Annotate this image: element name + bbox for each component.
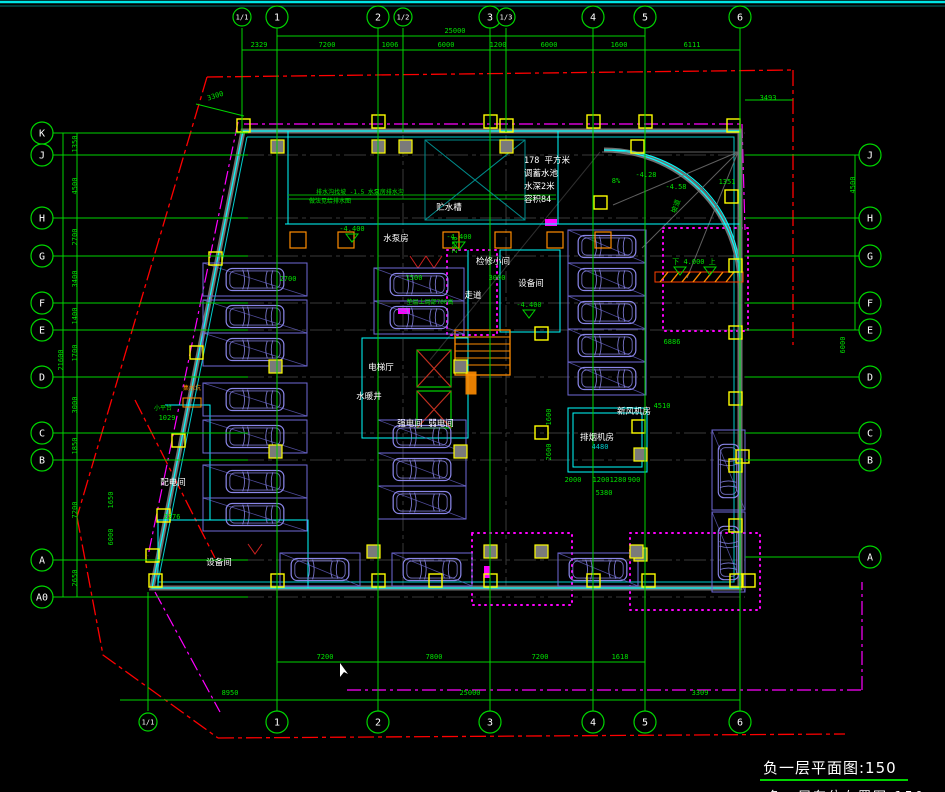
grid-bubble-label: 2 [375,13,381,24]
dim-text: 1006 [382,41,399,49]
dim-text: 1850 [71,438,79,455]
level-mark-triangle [674,267,686,275]
grid-bubble-label: E [867,326,873,337]
grid-bubble-label: E [39,326,45,337]
title-underline [760,779,908,781]
column-gray-filled [269,360,282,373]
room-label: 弱电间 [428,418,454,429]
grid-bubble-label: 3 [487,13,493,24]
dim-text: 8950 [222,689,239,697]
annotations: -4.400-4.400-4.400下 4.000 上-4.28-4.588%坡… [154,171,716,412]
column-orange [290,232,306,248]
dim-text: 2329 [251,41,268,49]
grid-bubble-label: A [39,556,45,567]
red-boundary-lines [77,70,845,738]
room-label: 水泵房 [383,233,409,244]
grid-bubble-label: H [39,214,45,225]
dim-text: 1650 [107,492,115,509]
parking-stall [378,486,466,519]
dim-text: 2600 [545,444,553,461]
annotation-text: 下 4.000 上 [672,257,716,266]
parking-stall [203,465,307,498]
parking-stall [392,553,472,586]
annotation-text: 垫层上局部700高 [407,298,454,306]
annotation-text: -4.28 [635,171,656,179]
column-gray-filled [269,445,282,458]
grid-bubble-label: 3 [487,718,493,729]
pool-note-line: 178 平方米 [524,155,570,166]
annotation-text: 排水沟找坡 -1.5 水泵房排水沟 [316,188,404,196]
grid-bubble-label: 2 [375,718,381,729]
grid-bubble-label: F [867,299,873,310]
grid-bubble-label: C [867,429,873,440]
cad-viewport: 1/1121/231/34561/1123456KJHGFEDCBAA0JHGF… [0,0,945,792]
room-label: 水暖井 [356,391,382,402]
annotation-text: 8% [612,177,621,185]
parking-stall [374,268,464,301]
dim-text: 1200 [593,476,610,484]
grid-bubble-label: C [39,429,45,440]
dim-text: 2000 [565,476,582,484]
grid-bubble-label: D [39,373,45,384]
room-label: 配电间 [160,477,186,488]
column-yellow [742,574,755,587]
dim-text: 1600 [545,409,553,426]
grid-bubble-label: K [39,129,45,140]
column-orange [595,232,611,248]
grid-bubble-label: 1/2 [397,14,410,22]
grid-bubble-label: 1/1 [236,14,249,22]
parking-stall [558,553,638,586]
dim-text: 1350 [71,136,79,153]
dim-text: 3000 [489,274,506,282]
column-yellow [535,327,548,340]
parking-stall [203,333,307,366]
magenta-lines [148,122,862,712]
column-yellow [725,190,738,203]
parking-stall [568,263,646,296]
dim-text: 900 [628,476,641,484]
dim-text: 2650 [71,570,79,587]
grid-bubble-label: G [867,252,873,263]
parking-stall [203,300,307,333]
grid-bubble-label: D [867,373,873,384]
grid-bubble-label: 1/3 [500,14,513,22]
top-border [0,2,945,6]
grid-bubble-label: 1 [274,13,280,24]
grid-bubble-label: A [867,553,873,564]
annotation-text: -4.400 [446,233,471,241]
dim-text: 4510 [654,402,671,410]
dim-text: 21600 [57,349,65,370]
dim-text: 1400 [71,308,79,325]
dim-text: 1029 [159,414,176,422]
dim-text: 7800 [426,653,443,661]
grid-bubble-label: A0 [36,593,48,604]
parking-stall [203,498,307,531]
grid-bubble-label: 1 [274,718,280,729]
column-yellow [642,574,655,587]
room-label: 电梯厅 [368,362,394,373]
dim-text: 7200 [319,41,336,49]
dim-text: 4480 [592,443,609,451]
column-orange [547,232,563,248]
column-orange [495,232,511,248]
grid-bubble-label: 6 [737,13,743,24]
dim-text: 1500 [406,274,423,282]
dim-text: 3400 [71,271,79,288]
room-label: 强电间 [397,418,423,429]
parking-stall [568,230,646,263]
room-label: 排烟机房 [580,432,614,443]
parking-stall [280,553,360,586]
grid-bubble-label: B [867,456,873,467]
dim-text: 4500 [71,178,79,195]
annotation-text: -4.400 [516,301,541,309]
column-gray-filled [454,360,467,373]
dim-text: 2700 [280,275,297,283]
room-label: 走道 [464,290,482,301]
dim-text: 2276 [164,513,181,521]
column-gray-filled [535,545,548,558]
dim-text: 6111 [684,41,701,49]
dim-text: 1200 [490,41,507,49]
annotation-text: 小平台 [154,404,172,412]
annotation-text: 集水坑 [183,384,201,392]
grid-bubble-label: J [39,151,45,162]
parking-stall [203,420,307,453]
parking-stall [568,296,646,329]
elevator-shafts [417,350,451,428]
column-gray-filled [399,140,412,153]
parking-stall [568,329,646,362]
room-label: 新风机房 [617,406,651,417]
room-label: 设备间 [206,557,232,568]
pool-note-line: 容积84 [524,194,551,205]
grid-bubble-label: H [867,214,873,225]
level-mark-triangle [523,310,535,318]
parking-stall [378,453,466,486]
dim-text: 6000 [107,529,115,546]
pool-note-line: 水深2米 [524,181,555,192]
dim-text: 25000 [444,27,465,35]
annotation-text: -4.58 [665,183,686,191]
room-label: 贮水槽 [436,202,462,213]
column-gray-filled [630,545,643,558]
dim-text: 7200 [317,653,334,661]
dim-text: 6886 [664,338,681,346]
dim-text: 3493 [760,94,777,102]
dim-text: 6000 [438,41,455,49]
grid-bubble-label: J [867,151,873,162]
grid-bubble-label: G [39,252,45,263]
dim-text: 7200 [71,502,79,519]
ramp-grille [655,272,743,282]
dim-text: 6000 [839,337,847,354]
floorplan-canvas[interactable]: 1/1121/231/34561/1123456KJHGFEDCBAA0JHGF… [0,0,945,792]
column-yellow [632,420,645,433]
grid-bubble-label: B [39,456,45,467]
column-gray-filled [454,445,467,458]
grid-bubble-label: 4 [590,718,596,729]
annotation-text: 坡道 [669,198,682,214]
dim-text: 1600 [611,41,628,49]
parking-stall [568,362,646,395]
dim-text: 5380 [596,489,613,497]
pool-note-line: 调蓄水池 [524,168,559,179]
dim-text: 2700 [71,229,79,246]
grid-bubble-label: F [39,299,45,310]
grid-bubble-label: 4 [590,13,596,24]
dim-text: 25000 [459,689,480,697]
dim-text: 3300 [206,90,225,103]
dim-text: 1280 [610,476,627,484]
drawing-title: 负一层平面图:150 [763,757,897,778]
level-mark-triangle [346,234,358,242]
dim-text: 1618 [612,653,629,661]
grid-bubble-label: 1/1 [142,719,155,727]
grid-bubble-label: 5 [642,718,648,729]
mouse-cursor [340,663,348,677]
grid-bubble-label: 5 [642,13,648,24]
dim-text: 6000 [541,41,558,49]
column-gray-filled [500,140,513,153]
partial-next-caption: 负一层车位布置图:150 [768,786,938,792]
dim-text: 3309 [692,689,709,697]
column-yellow [594,196,607,209]
dimension-line [196,104,244,116]
room-label: 设备间 [518,278,544,289]
parking-stall [203,383,307,416]
grid-bubble-label: 6 [737,718,743,729]
room-label: 检修小间 [476,256,510,267]
annotation-text: 做法见给排水图 [309,197,351,205]
annotation-text: -4.400 [339,225,364,233]
dim-text: 7200 [532,653,549,661]
dim-text: 4500 [849,177,857,194]
dim-text: 1700 [71,345,79,362]
dim-text: 1351 [719,178,736,186]
dim-text: 3000 [71,397,79,414]
